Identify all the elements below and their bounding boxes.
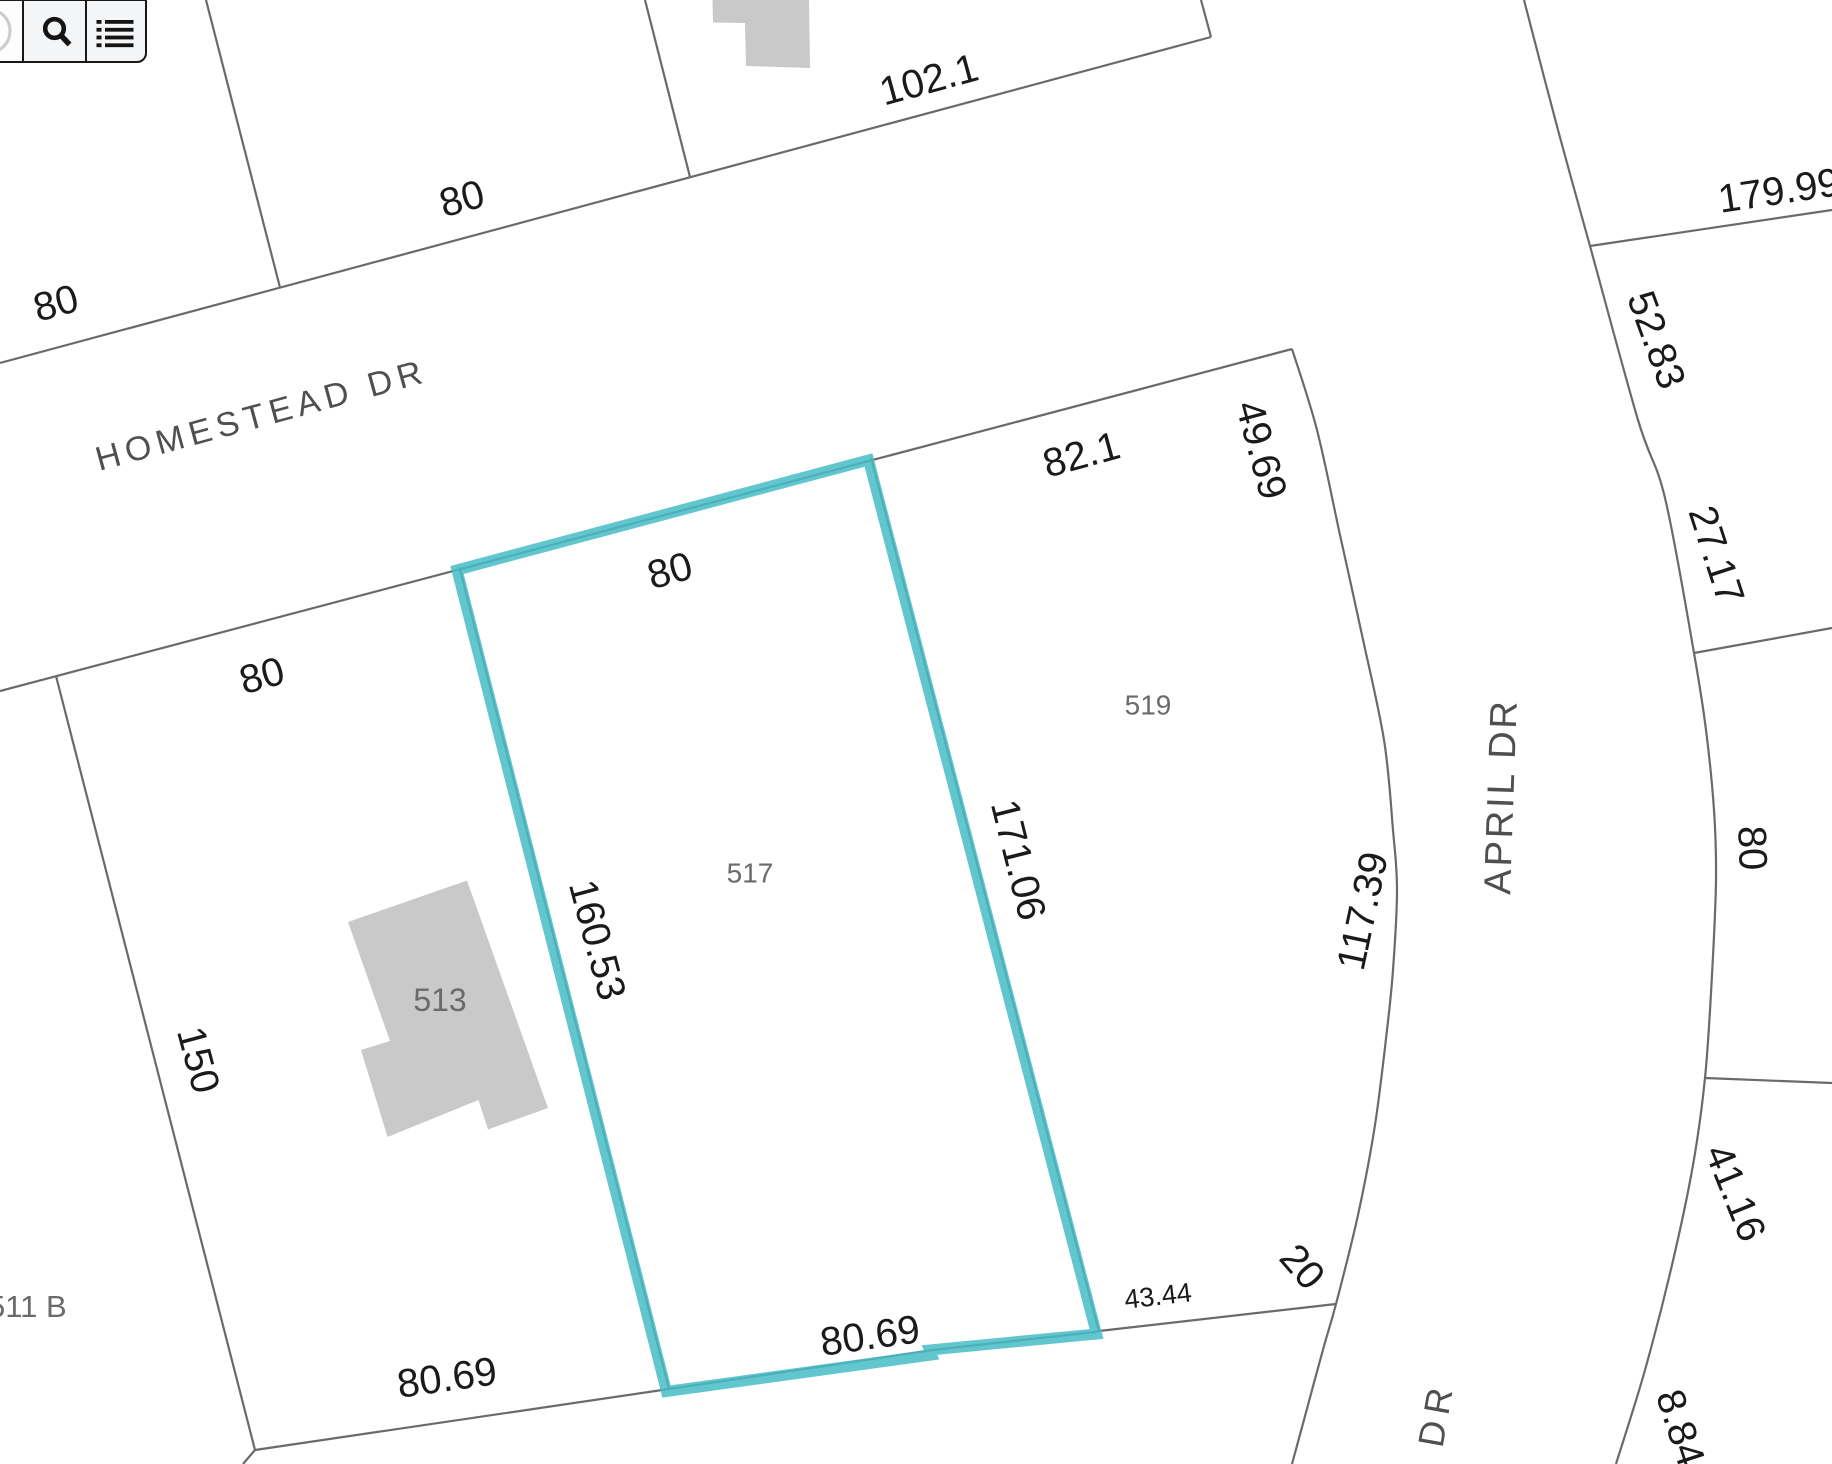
svg-text:41.16: 41.16 <box>1696 1138 1774 1247</box>
svg-text:20: 20 <box>1271 1236 1333 1298</box>
svg-text:80: 80 <box>1729 825 1775 871</box>
svg-text:52.83: 52.83 <box>1618 285 1694 394</box>
svg-text:APRIL DR: APRIL DR <box>1477 698 1526 896</box>
svg-text:80: 80 <box>643 544 697 598</box>
svg-text:511 B: 511 B <box>0 1289 67 1324</box>
svg-text:8.84: 8.84 <box>1647 1384 1713 1464</box>
svg-text:DR: DR <box>1410 1378 1462 1450</box>
svg-text:517: 517 <box>727 858 774 889</box>
svg-text:49.69: 49.69 <box>1227 396 1295 504</box>
svg-text:160.53: 160.53 <box>560 875 634 1005</box>
svg-text:150: 150 <box>168 1022 228 1098</box>
svg-text:43.44: 43.44 <box>1123 1277 1194 1314</box>
svg-text:80: 80 <box>29 276 83 330</box>
svg-text:80: 80 <box>235 649 289 703</box>
svg-text:117.39: 117.39 <box>1329 848 1397 974</box>
svg-text:80: 80 <box>435 172 489 226</box>
svg-text:102.1: 102.1 <box>875 46 983 115</box>
svg-text:513: 513 <box>413 982 466 1018</box>
svg-text:27.17: 27.17 <box>1680 501 1753 610</box>
svg-text:171.06: 171.06 <box>982 795 1054 924</box>
svg-text:519: 519 <box>1125 690 1172 721</box>
svg-text:80.69: 80.69 <box>394 1349 499 1407</box>
svg-text:HOMESTEAD DR: HOMESTEAD DR <box>91 352 431 478</box>
svg-text:82.1: 82.1 <box>1038 424 1125 487</box>
